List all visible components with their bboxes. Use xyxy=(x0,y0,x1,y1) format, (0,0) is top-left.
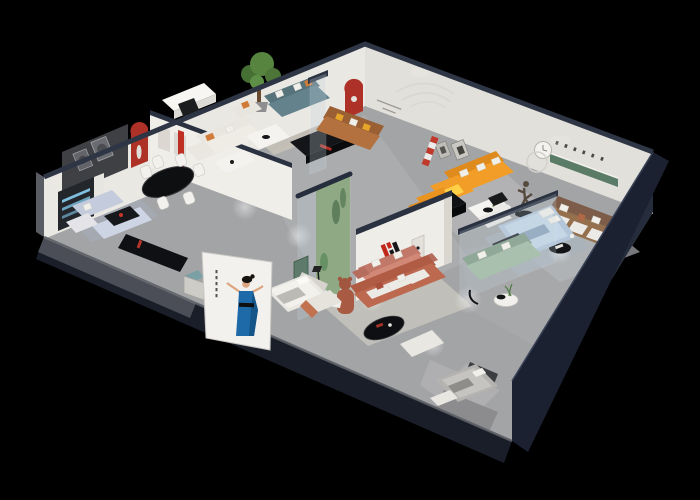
logo-wall-edge-shade xyxy=(444,196,452,265)
woman-hair-bun xyxy=(250,274,254,278)
showroom-render: 华悦 xyxy=(0,0,700,500)
table-decor xyxy=(262,135,270,139)
teddy-ear xyxy=(338,277,342,281)
table-tray xyxy=(497,295,506,300)
red-table-decor xyxy=(119,213,123,217)
left-corner-outer-face xyxy=(36,172,44,237)
table-tray xyxy=(483,208,493,213)
niche-sculpture xyxy=(137,145,142,159)
nightstand-lamp xyxy=(570,234,574,238)
caption-mark xyxy=(216,294,218,297)
caption-mark xyxy=(216,276,218,279)
dress-belt xyxy=(239,303,254,308)
caption-mark xyxy=(216,288,218,291)
sculpture-head xyxy=(523,181,529,187)
table-decor xyxy=(230,160,234,164)
teddy-ear xyxy=(348,277,352,281)
billboard xyxy=(202,252,272,350)
niche-bust xyxy=(351,96,357,102)
caption-mark xyxy=(216,270,218,273)
table-cup xyxy=(388,323,392,327)
wall-glow xyxy=(550,135,570,145)
caption-mark xyxy=(216,282,218,285)
red-arch-niche xyxy=(130,122,148,168)
